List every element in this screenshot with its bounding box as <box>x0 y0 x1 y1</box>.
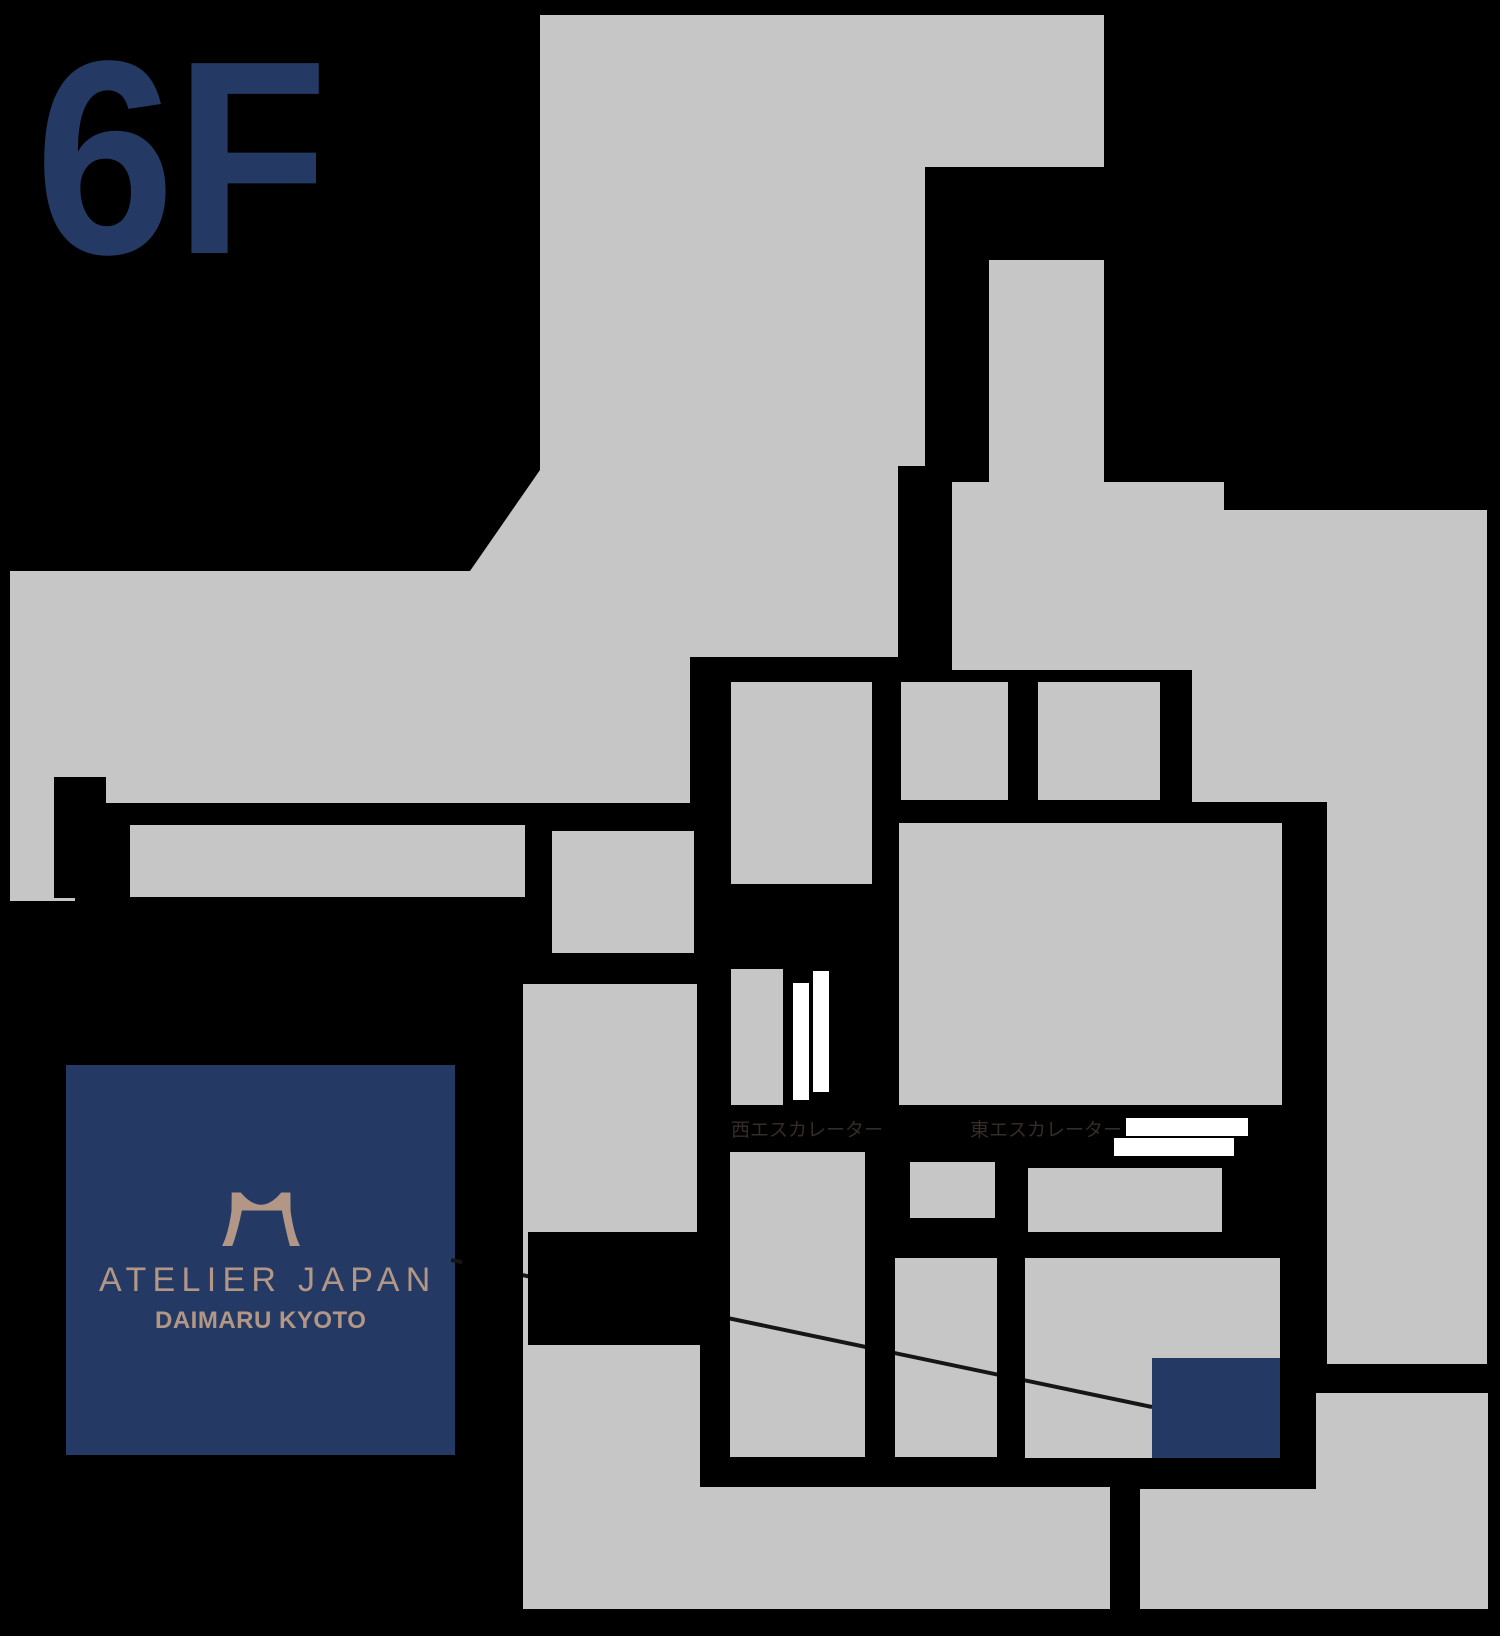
svg-text:DAIMARU KYOTO: DAIMARU KYOTO <box>155 1307 366 1334</box>
svg-text:東エスカレーター: 東エスカレーター <box>970 1119 1122 1141</box>
svg-text:西エスカレーター: 西エスカレーター <box>731 1119 883 1141</box>
svg-text:ATELIER JAPAN: ATELIER JAPAN <box>99 1261 437 1299</box>
svg-text:6F: 6F <box>35 4 328 312</box>
